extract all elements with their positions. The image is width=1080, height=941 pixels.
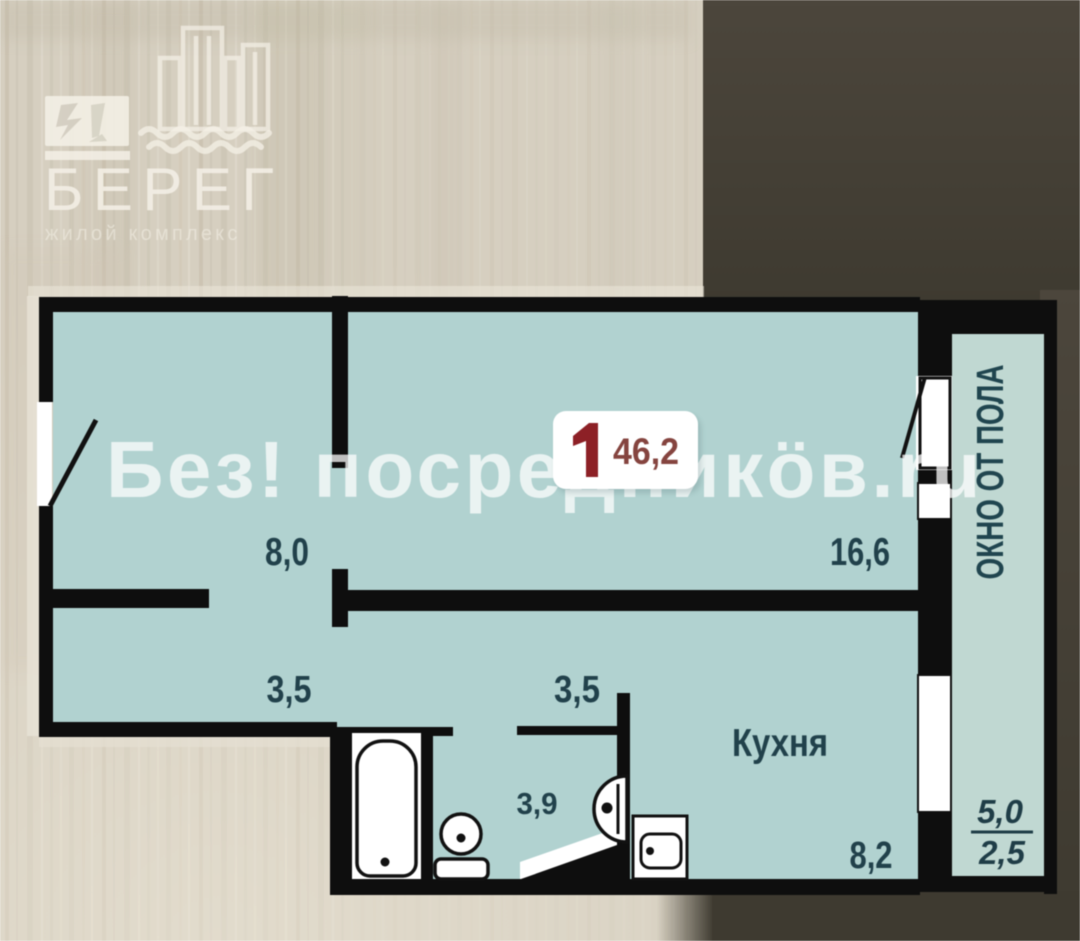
svg-text:8,0: 8,0 <box>265 531 309 574</box>
svg-text:46,2: 46,2 <box>613 431 679 472</box>
svg-text:3,5: 3,5 <box>267 669 312 711</box>
svg-text:2,5: 2,5 <box>978 834 1026 871</box>
svg-text:5,0: 5,0 <box>977 793 1024 830</box>
svg-text:16,6: 16,6 <box>830 531 890 574</box>
svg-text:8,2: 8,2 <box>850 835 893 877</box>
svg-text:Кухня: Кухня <box>732 722 828 765</box>
svg-text:3,5: 3,5 <box>554 669 600 711</box>
svg-text:Без! посредникöв.ru: Без! посредникöв.ru <box>106 425 984 514</box>
svg-text:3,9: 3,9 <box>517 786 558 821</box>
svg-text:жилой комплекс: жилой комплекс <box>45 223 241 245</box>
svg-text:БЕРЕГ: БЕРЕГ <box>44 156 283 223</box>
